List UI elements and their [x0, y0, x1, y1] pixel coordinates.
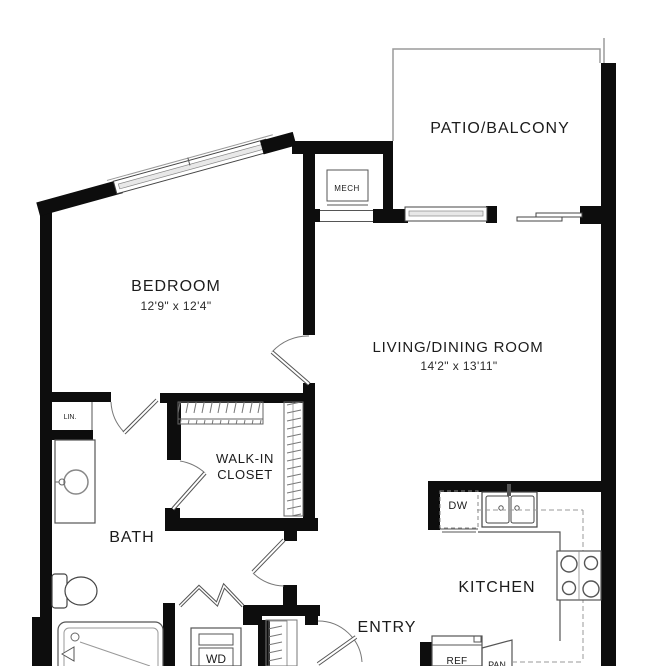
wall-angled-right	[260, 132, 296, 155]
coat-closet-rod	[269, 621, 287, 666]
wall-patio-right-stub	[580, 206, 603, 224]
wall-linen-top	[52, 392, 111, 402]
floor-plan-svg: PATIO/BALCONY BEDROOM 12'9" x 12'4" LIVI…	[0, 0, 650, 666]
dishwasher-label: DW	[448, 500, 467, 512]
wall-kitchen-lower-stub	[420, 642, 432, 666]
kitchen-label: KITCHEN	[458, 579, 535, 596]
entry-door-leaf-inner	[318, 637, 356, 664]
bath-label: BATH	[109, 529, 154, 546]
sliding-door-panel-2	[536, 213, 582, 217]
wall-laundry-left	[163, 603, 175, 666]
labels: PATIO/BALCONY BEDROOM 12'9" x 12'4" LIVI…	[64, 120, 570, 666]
walk-in-closet-label-line1: WALK-IN	[216, 451, 274, 466]
living-dining-dims: 14'2" x 13'11"	[420, 359, 497, 373]
wall-hall-t-right-block	[305, 605, 318, 625]
wall-mech-bottom-stub	[313, 209, 320, 222]
sink-faucet	[507, 484, 511, 496]
entry-label: ENTRY	[358, 619, 417, 636]
wall-left-upper	[40, 209, 52, 620]
bedroom-door-arc	[272, 336, 309, 352]
wall-hall-top-stub	[284, 531, 297, 541]
living-window-glass	[409, 211, 483, 216]
wall-linen-bottom	[52, 430, 93, 440]
wall-left-lower	[32, 617, 52, 666]
wall-mech-bottom-right	[373, 209, 408, 223]
bedroom-angled-wall	[35, 129, 296, 216]
wall-bedroom-right-lower	[303, 383, 315, 531]
refrigerator-label: REF	[447, 656, 468, 666]
wall-closet-bottom	[165, 518, 318, 531]
wall-right	[601, 63, 616, 666]
bedroom-door-leaf-inner	[272, 352, 309, 384]
linen-label: LIN.	[64, 414, 77, 421]
sliding-door-panel-1	[517, 217, 562, 221]
wall-bedroom-right-upper	[303, 141, 315, 335]
wall-coat-closet-left	[258, 620, 270, 666]
doors	[111, 336, 362, 664]
pantry-label: PAN	[488, 660, 506, 666]
refrigerator-hinge	[474, 636, 481, 642]
bedroom-dims: 12'9" x 12'4"	[140, 299, 211, 313]
hall-door-arc	[253, 573, 284, 586]
toilet-bowl	[65, 577, 97, 605]
patio-label: PATIO/BALCONY	[430, 120, 570, 137]
wall-hall-lower-stub	[283, 585, 297, 606]
bedroom-label: BEDROOM	[131, 278, 221, 295]
bedroom-window-glass	[118, 144, 264, 189]
closet-rod-top	[178, 402, 263, 424]
wall-kitchen-top	[428, 481, 601, 492]
laundry-bifold-doors-inner	[180, 586, 243, 606]
hall-door-leaf-inner	[253, 540, 284, 572]
wall-kitchen-left-end	[428, 481, 440, 530]
walls	[32, 63, 616, 666]
wall-angled-left	[36, 180, 123, 216]
mech-room	[320, 170, 373, 222]
closet-rod-right	[284, 402, 303, 516]
floor-plan: PATIO/BALCONY BEDROOM 12'9" x 12'4" LIVI…	[0, 0, 650, 666]
bath-fixtures	[52, 440, 163, 666]
closet-door-arc	[180, 461, 205, 473]
living-dining-label: LIVING/DINING ROOM	[372, 339, 543, 356]
washer-dryer-label: WD	[206, 652, 226, 666]
mech-opening	[320, 210, 373, 222]
bath-door-leaf-inner	[124, 400, 157, 433]
bath-door-arc	[111, 402, 124, 432]
entry-door-arc	[318, 621, 362, 662]
wall-patio-post	[486, 206, 497, 223]
mech-label: MECH	[334, 184, 360, 193]
vanity-counter	[55, 440, 95, 523]
walk-in-closet-label-line2: CLOSET	[217, 467, 273, 482]
closet-door-leaf-inner	[173, 473, 205, 509]
